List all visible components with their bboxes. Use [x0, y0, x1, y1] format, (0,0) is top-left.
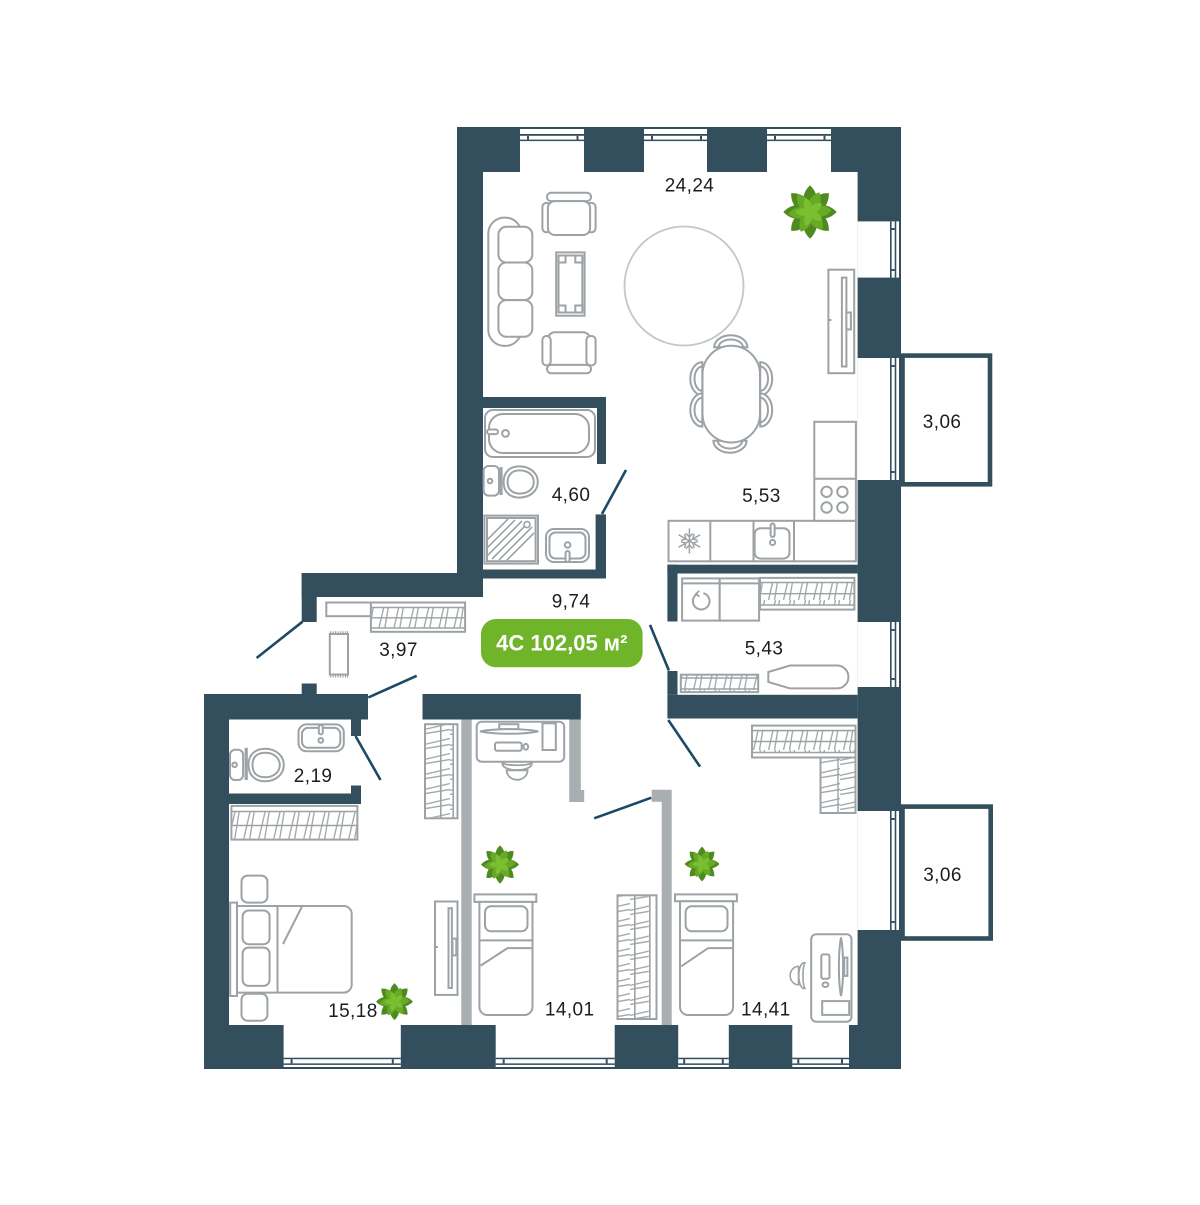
svg-text:14,41: 14,41 [741, 1000, 791, 1021]
svg-text:15,18: 15,18 [328, 1001, 378, 1022]
svg-text:9,74: 9,74 [552, 592, 591, 613]
svg-text:3,97: 3,97 [379, 640, 418, 661]
svg-text:24,24: 24,24 [665, 176, 715, 197]
svg-text:5,53: 5,53 [742, 486, 781, 507]
svg-text:5,43: 5,43 [745, 639, 784, 660]
svg-text:3,06: 3,06 [923, 412, 962, 433]
svg-text:14,01: 14,01 [545, 1000, 595, 1021]
svg-text:4С 102,05 м²: 4С 102,05 м² [496, 631, 627, 656]
svg-text:3,06: 3,06 [923, 865, 962, 886]
svg-text:4,60: 4,60 [552, 485, 591, 506]
svg-text:2,19: 2,19 [294, 766, 333, 787]
